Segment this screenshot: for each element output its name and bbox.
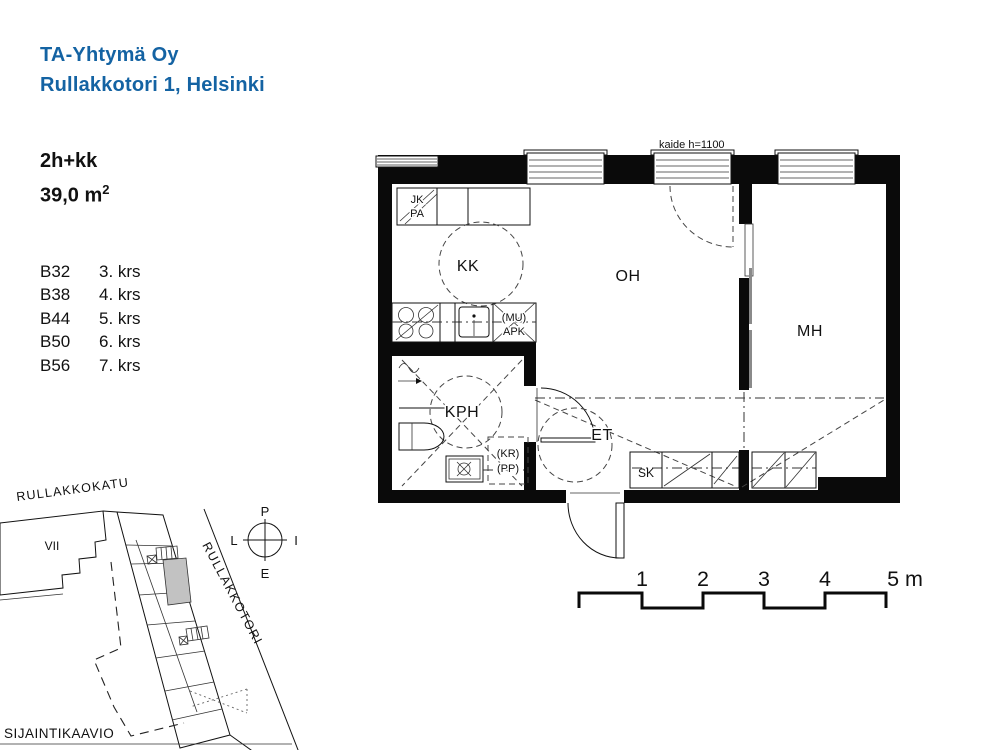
unit-code: B38 [40, 283, 99, 306]
railing-note: kaide h=1100 [659, 139, 725, 151]
window-corner [376, 156, 438, 167]
street-name-right: RULLAKKOTORI [199, 540, 265, 648]
compass-west: L [230, 533, 237, 548]
company-name: TA-Yhtymä Oy [40, 40, 265, 70]
scale-tick-5: 5 m [887, 567, 923, 591]
window-bedroom [775, 150, 858, 184]
site-map-caption: SIJAINTIKAAVIO [4, 726, 114, 741]
unit-row: B384. krs [40, 283, 141, 306]
bathroom: (KR) (PP) KPH [398, 360, 595, 486]
scale-tick-3: 3 [758, 567, 770, 591]
scale-tick-2: 2 [697, 567, 709, 591]
dishwasher-label-1: (MU) [502, 312, 526, 324]
drying-label-2: (PP) [497, 463, 519, 475]
bathroom-door [537, 388, 595, 442]
kitchen-counter: (MU) APK [392, 303, 536, 342]
kitchen-cabinets: JK PA [397, 188, 530, 225]
unit-code: B32 [40, 260, 99, 283]
toilet-icon [399, 423, 444, 450]
unit-floor: 4. krs [99, 283, 141, 306]
drying-label-1: (KR) [497, 448, 520, 460]
closet-label: SK [638, 466, 654, 480]
unit-row: B506. krs [40, 330, 141, 353]
neighbor-building: VII [0, 511, 106, 600]
area-value: 39,0 m [40, 185, 102, 207]
scale-bar-line [579, 593, 886, 608]
unit-row: B323. krs [40, 260, 141, 283]
living-room-label: OH [616, 268, 641, 285]
hall-closets: SK [630, 452, 739, 488]
site-map: RULLAKKOKATU VII [0, 478, 320, 750]
apartment-area: 39,0 m2 [40, 182, 110, 208]
entrance-door [566, 490, 624, 558]
unit-floor-list: B323. krs B384. krs B445. krs B506. krs … [40, 260, 141, 377]
unit-floor: 5. krs [99, 307, 141, 330]
kitchen-table: KK [439, 222, 523, 306]
block-number-label: VII [45, 539, 60, 553]
kitchenette-label: KK [457, 258, 479, 275]
apartment-type: 2h+kk [40, 150, 97, 173]
compass-east: I [294, 533, 298, 548]
unit-row: B567. krs [40, 354, 141, 377]
unit-code: B44 [40, 307, 99, 330]
bathroom-label: KPH [445, 404, 479, 421]
stairs-icon [179, 626, 209, 645]
unit-code: B50 [40, 330, 99, 353]
floorplan-sheet: TA-Yhtymä Oy Rullakkotori 1, Helsinki 2h… [0, 0, 1000, 750]
unit-floor: 6. krs [99, 330, 141, 353]
bedroom-label: MH [797, 323, 823, 340]
window-living-1 [524, 150, 607, 184]
unit-row: B445. krs [40, 307, 141, 330]
unit-code: B56 [40, 354, 99, 377]
entry-hall: ET [538, 408, 624, 558]
stove-icon [396, 305, 438, 340]
scale-bar: 1 2 3 4 5 m [570, 550, 930, 620]
balcony-door [651, 150, 734, 247]
scale-tick-4: 4 [819, 567, 831, 591]
bedroom-closets [752, 452, 816, 488]
highlighted-unit [163, 558, 191, 605]
scale-tick-1: 1 [636, 567, 648, 591]
compass-rose-icon: P I E L [230, 504, 297, 581]
compass-south: E [261, 566, 270, 581]
compass-north: P [261, 504, 270, 519]
street-name-top: RULLAKKOKATU [16, 478, 130, 504]
drying-reservation: (KR) (PP) [488, 437, 528, 484]
unit-floor: 3. krs [99, 260, 141, 283]
dishwasher-label-2: APK [503, 326, 526, 338]
area-exponent: 2 [102, 182, 109, 197]
unit-floor: 7. krs [99, 354, 141, 377]
floorplan-drawing: kaide h=1100 [370, 130, 915, 570]
shower-icon [398, 364, 422, 385]
freezer-label: PA [410, 208, 425, 220]
address-line: Rullakkotori 1, Helsinki [40, 70, 265, 100]
sink-icon [459, 307, 489, 337]
entry-label: ET [591, 427, 612, 444]
fridge-label: JK [411, 194, 425, 206]
sheet-header: TA-Yhtymä Oy Rullakkotori 1, Helsinki [40, 40, 265, 100]
interior-walls [392, 184, 752, 490]
